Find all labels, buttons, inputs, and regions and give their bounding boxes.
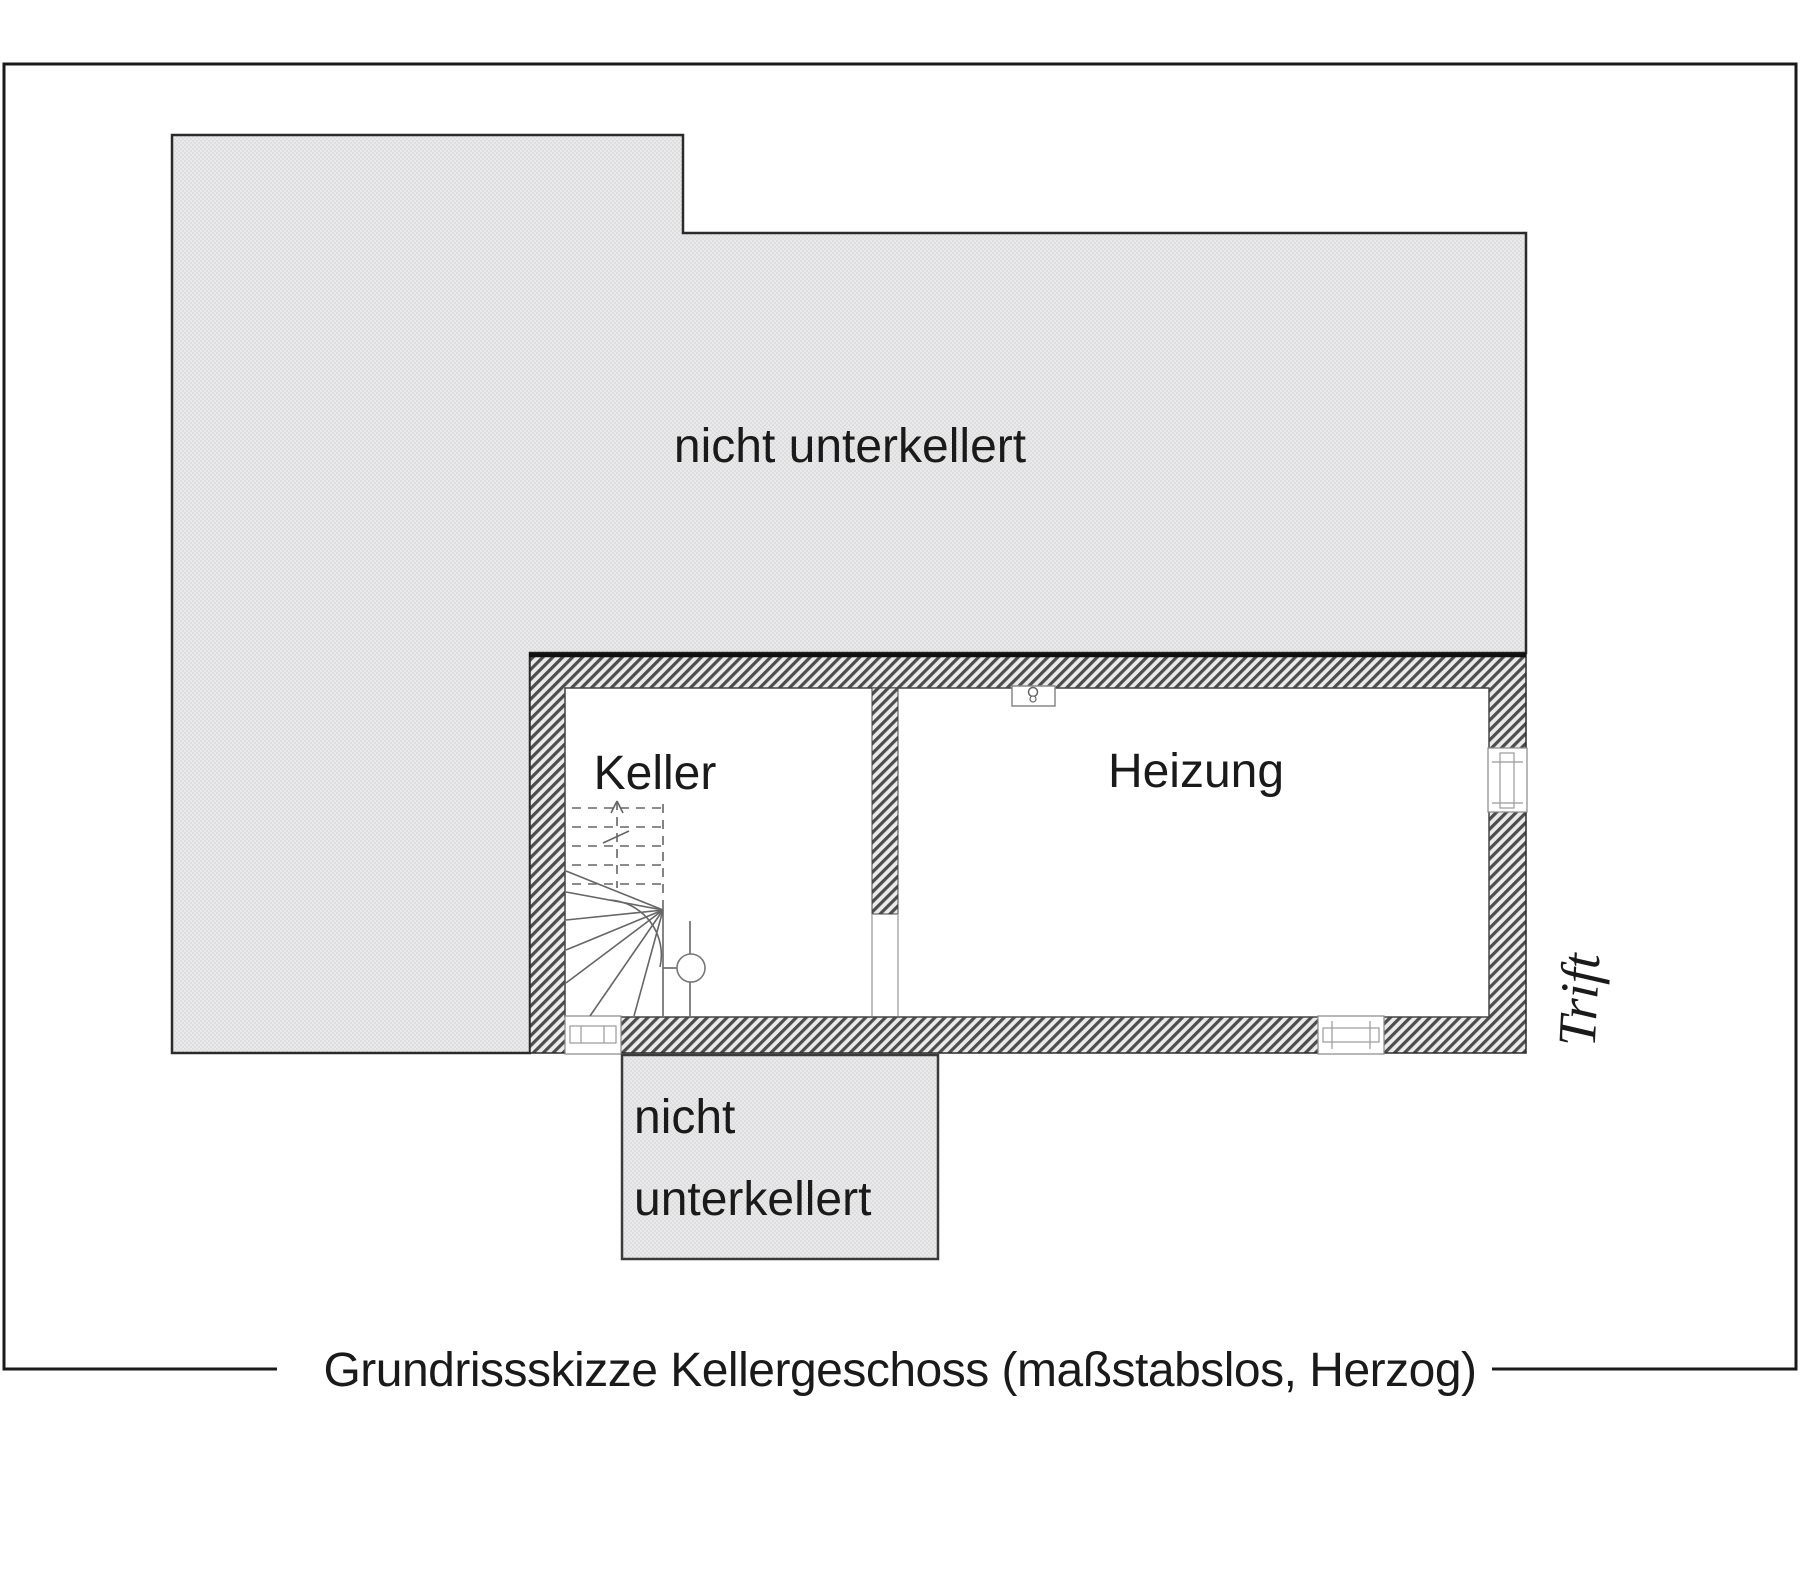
chimney-icon: [1012, 686, 1055, 706]
small-no-basement-label-line1: nicht: [634, 1091, 735, 1144]
figure-caption: Grundrissskizze Kellergeschoss (maßstabs…: [323, 1344, 1476, 1397]
small-no-basement-area: [622, 1055, 938, 1259]
street-name-label: Trift: [1547, 950, 1612, 1048]
floorplan-sketch-page: nicht unterkellert Keller Heizung nicht …: [0, 0, 1804, 1583]
heizung-room-label: Heizung: [1108, 745, 1284, 798]
large-no-basement-label: nicht unterkellert: [674, 420, 1026, 473]
window-icon-bottom-wall: [1318, 1016, 1384, 1054]
small-no-basement-label-line2: unterkellert: [634, 1173, 871, 1226]
partition-wall: [872, 688, 898, 914]
keller-room-label: Keller: [594, 747, 717, 800]
floorplan-drawing: nicht unterkellert Keller Heizung nicht …: [0, 0, 1804, 1583]
window-icon-right-wall: [1488, 748, 1527, 812]
door-icon-stair-exit: [565, 1016, 621, 1054]
